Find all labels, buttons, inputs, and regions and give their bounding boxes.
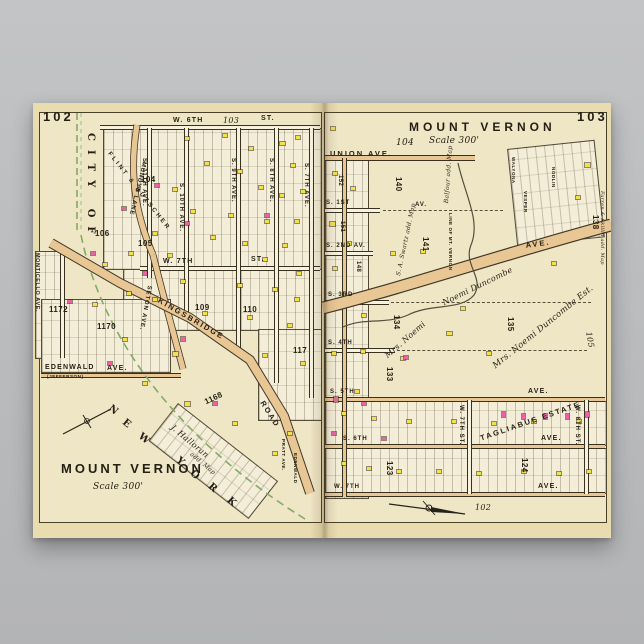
label-edenwald-vertical: EDENWALD [293, 453, 298, 484]
building-footprint [91, 252, 95, 255]
building-footprint [259, 186, 263, 189]
building-footprint [173, 188, 177, 191]
label-substreet-3: NODLIN [551, 167, 556, 188]
building-footprint [280, 194, 284, 197]
building-footprint [502, 412, 505, 417]
building-footprint [185, 137, 189, 140]
building-footprint [181, 337, 185, 341]
label-w8th-st-vertical: W. 8TH ST. [574, 405, 580, 445]
building-footprint [211, 236, 215, 239]
building-footprint [265, 214, 269, 217]
map-poster: 102 103 W. 6TH ST. W. 7TH ST. S. 11TH AV… [33, 103, 611, 538]
building-footprint [205, 162, 209, 165]
building-footprint [191, 210, 195, 213]
building-footprint [362, 402, 366, 405]
building-footprint [295, 220, 299, 223]
block-106: 106 [95, 229, 110, 238]
label-w7th: W. 7TH [163, 258, 194, 265]
label-s8th-ave: S. 8TH AVE. [268, 158, 274, 203]
building-footprint [492, 422, 496, 425]
building-footprint [552, 262, 556, 265]
block-151: 151 [339, 221, 345, 232]
building-footprint [362, 314, 366, 317]
building-footprint [203, 312, 207, 315]
building-footprint [557, 472, 561, 475]
building-footprint [153, 298, 157, 301]
building-footprint [576, 196, 580, 199]
building-footprint [248, 316, 252, 319]
building-footprint [404, 356, 408, 359]
building-footprint [229, 214, 233, 217]
right-map-ref: 104 [396, 138, 414, 148]
label-s6th: S. 6TH [343, 436, 368, 442]
building-footprint [283, 244, 287, 247]
building-footprint [168, 254, 172, 257]
left-page-number: 102 [43, 109, 74, 124]
label-line-of-mt-vernon: LINE OF MT. VERNON [448, 213, 453, 271]
block-138: 138 [591, 215, 600, 230]
label-edenwald: EDENWALD [45, 364, 95, 371]
block-109: 109 [195, 303, 210, 312]
label-w6th: W. 6TH [173, 117, 204, 124]
building-footprint [477, 472, 481, 475]
left-map-title: MOUNT VERNON [61, 461, 204, 476]
building-footprint [129, 252, 133, 255]
building-footprint [93, 303, 97, 306]
building-footprint [372, 417, 376, 420]
building-footprint [288, 324, 292, 327]
building-footprint [296, 136, 300, 139]
block-1172: 1172 [49, 305, 68, 314]
building-footprint [291, 164, 295, 167]
building-footprint [265, 220, 269, 223]
block-117: 117 [293, 346, 307, 355]
building-footprint [585, 163, 590, 167]
building-footprint [437, 470, 441, 473]
label-monticello-ave: MONTICELLO AVE. [34, 253, 40, 312]
label-union-ave: UNION AVE. [330, 149, 393, 158]
building-footprint [447, 332, 452, 335]
label-w7th-ave: AVE. [538, 483, 559, 490]
building-footprint [127, 292, 131, 295]
building-footprint [185, 402, 190, 406]
left-map-scale: Scale 300' [93, 482, 143, 492]
building-footprint [566, 414, 569, 419]
building-footprint [122, 207, 126, 210]
building-footprint [397, 470, 401, 473]
block-123: 123 [385, 461, 394, 476]
building-footprint [223, 134, 227, 137]
building-footprint [249, 147, 253, 150]
building-footprint [461, 307, 465, 310]
label-substreet-2: VESPER [523, 191, 528, 213]
building-footprint [297, 272, 301, 275]
label-s7th-ave: S. 7TH AVE. [303, 163, 309, 208]
building-footprint [391, 252, 395, 255]
right-xref-102: 102 [475, 503, 491, 512]
block-1170: 1170 [97, 322, 116, 331]
building-footprint [342, 462, 346, 465]
building-footprint [301, 362, 305, 365]
building-footprint [361, 350, 365, 353]
block-133: 133 [385, 367, 394, 382]
label-pratt-ave: PRATT AVE. [281, 439, 286, 471]
building-footprint [342, 412, 346, 415]
label-s5th-ave: AVE. [528, 388, 549, 395]
building-footprint [181, 280, 185, 283]
building-footprint [273, 452, 277, 455]
building-footprint [273, 288, 277, 291]
label-city-of: CITY OF [85, 133, 96, 243]
block-104: 104 [141, 175, 156, 184]
poster-photo: 102 103 W. 6TH ST. W. 7TH ST. S. 11TH AV… [0, 0, 644, 644]
block-140: 140 [394, 177, 403, 192]
building-footprint [295, 298, 299, 301]
label-jefferson: (JEFFERSON) [47, 374, 84, 379]
label-w7th-st: ST. [251, 256, 265, 263]
building-footprint [123, 338, 127, 341]
block-135: 135 [506, 317, 515, 332]
block-141: 141 [421, 237, 430, 252]
building-footprint [155, 184, 159, 187]
building-footprint [288, 432, 292, 435]
building-footprint [367, 467, 371, 470]
building-footprint [173, 352, 178, 356]
building-footprint [153, 232, 157, 235]
page-fold [310, 103, 338, 538]
building-footprint [233, 422, 237, 425]
label-substreet-1: WALYONA [511, 157, 516, 184]
block-134: 134 [392, 315, 401, 330]
building-footprint [351, 187, 355, 190]
building-footprint [103, 263, 107, 266]
building-footprint [382, 437, 386, 440]
building-footprint [586, 412, 589, 417]
block-110: 110 [243, 305, 257, 314]
building-footprint [452, 420, 456, 423]
building-footprint [355, 390, 359, 393]
building-footprint [143, 382, 147, 385]
label-w7th-st-vertical: W. 7TH ST. [458, 405, 464, 445]
building-footprint [487, 352, 491, 355]
building-footprint [185, 222, 189, 225]
building-footprint [238, 284, 242, 287]
label-w6th-st: ST. [261, 115, 275, 122]
building-footprint [238, 170, 242, 173]
building-footprint [280, 142, 285, 145]
right-page-number: 103 [577, 109, 608, 124]
building-footprint [263, 354, 267, 357]
building-footprint [407, 420, 411, 423]
label-s10th-ave: S. 10TH AVE. [178, 183, 184, 232]
block-105: 105 [138, 239, 153, 248]
building-footprint [587, 470, 591, 473]
block-148: 148 [355, 261, 361, 272]
building-footprint [143, 272, 147, 275]
right-map-title: MOUNT VERNON [409, 120, 556, 134]
building-footprint [68, 300, 72, 303]
label-s9th-ave: S. 9TH AVE. [230, 158, 236, 203]
label-edenwald-ave: AVE. [107, 365, 128, 372]
building-footprint [243, 242, 247, 245]
block-124: 124 [520, 458, 529, 473]
label-s6th-ave: AVE. [541, 435, 562, 442]
left-xref-103: 103 [223, 116, 239, 125]
right-map-scale: Scale 300' [429, 136, 479, 146]
